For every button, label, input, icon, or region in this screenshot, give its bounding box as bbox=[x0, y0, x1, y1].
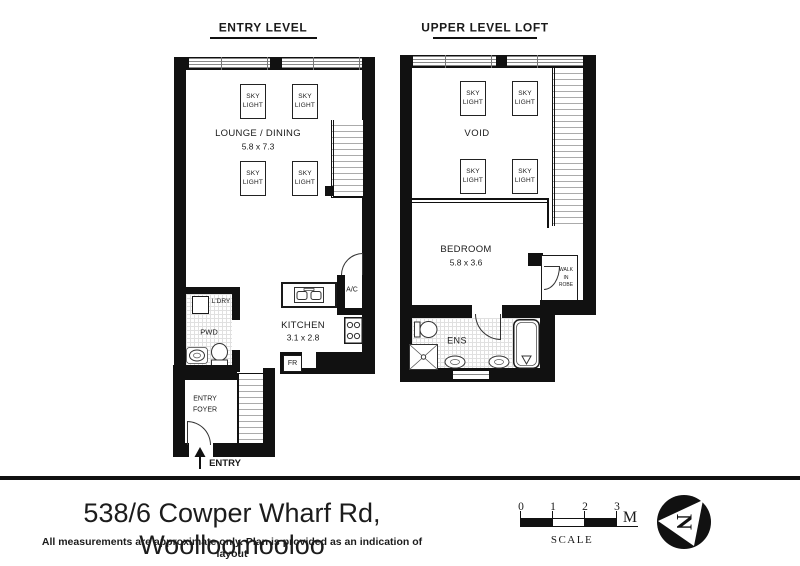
ac-closet-bottom-wall bbox=[337, 308, 375, 315]
entry-left-wall bbox=[174, 57, 186, 380]
skylight: SKY LIGHT bbox=[292, 84, 318, 119]
skylight: SKY LIGHT bbox=[240, 161, 266, 196]
scale-tick bbox=[520, 511, 521, 518]
bedroom-dimensions: 5.8 x 3.6 bbox=[450, 258, 483, 269]
ensuite-top-wall-left bbox=[412, 305, 472, 318]
upper-level-title: UPPER LEVEL LOFT bbox=[421, 21, 548, 36]
powder-label: PWD bbox=[200, 327, 218, 336]
cooktop-icon bbox=[344, 317, 363, 344]
scale-tick bbox=[616, 511, 617, 518]
ensuite-window bbox=[453, 370, 489, 380]
void-balustrade bbox=[412, 198, 549, 203]
loft-right-wall bbox=[583, 55, 596, 315]
skylight: SKY LIGHT bbox=[460, 81, 486, 116]
ensuite-toilet-icon bbox=[414, 320, 438, 339]
scale-tick bbox=[552, 511, 553, 518]
ensuite-top-wall-right bbox=[502, 305, 540, 318]
disclaimer-text: All measurements are approximate only. P… bbox=[26, 536, 438, 560]
kitchen-wall-recess bbox=[302, 352, 316, 368]
skylight: SKY LIGHT bbox=[460, 159, 486, 194]
skylight: SKY LIGHT bbox=[512, 81, 538, 116]
skylight-label: SKY LIGHT bbox=[463, 168, 483, 185]
loft-stairs bbox=[552, 68, 583, 226]
ac-label: A/C bbox=[346, 287, 358, 296]
balustrade-return bbox=[547, 198, 549, 228]
floorplan-page: { "plans": [ { "title": "ENTRY LEVEL", "… bbox=[0, 0, 800, 566]
scale-unit-label: M bbox=[623, 508, 637, 528]
scale-segment-black bbox=[521, 519, 553, 526]
stair-newel-post bbox=[325, 186, 333, 196]
footer-divider bbox=[0, 476, 800, 480]
basin-icon bbox=[186, 347, 208, 364]
ac-closet-door-arc bbox=[341, 253, 363, 275]
fridge-box: FR bbox=[283, 355, 302, 372]
kitchen-dimensions: 3.1 x 2.8 bbox=[287, 333, 320, 344]
kitchen-label: KITCHEN bbox=[281, 320, 325, 332]
scale-tick bbox=[584, 511, 585, 518]
toilet-icon bbox=[209, 343, 230, 367]
skylight-label: SKY LIGHT bbox=[463, 90, 483, 107]
entry-right-wall bbox=[362, 57, 375, 374]
bedroom-label: BEDROOM bbox=[440, 244, 491, 256]
foyer-bottom-wall-left bbox=[173, 443, 189, 457]
north-arrow-icon: N bbox=[656, 494, 712, 550]
upper-level-title-underline bbox=[433, 37, 537, 39]
front-door-arc bbox=[187, 421, 211, 445]
skylight-label: SKY LIGHT bbox=[515, 90, 535, 107]
skylight: SKY LIGHT bbox=[240, 84, 266, 119]
entry-arrow-icon bbox=[194, 447, 206, 469]
vanity-basin-icon bbox=[443, 355, 467, 369]
fridge-label: FR bbox=[288, 360, 297, 367]
powder-top-wall bbox=[180, 287, 240, 294]
loft-top-window-pier bbox=[496, 55, 507, 68]
loft-left-wall bbox=[400, 55, 412, 382]
vanity-basin-icon bbox=[487, 355, 511, 369]
ac-closet-left-wall bbox=[337, 275, 345, 308]
skylight-label: SKY LIGHT bbox=[295, 170, 315, 187]
laundry-label: L'DRY bbox=[212, 298, 230, 306]
skylight: SKY LIGHT bbox=[292, 161, 318, 196]
walk-in-robe-label: WALK IN ROBE bbox=[559, 267, 573, 290]
foyer-top-wall bbox=[173, 365, 237, 380]
entry-label: ENTRY bbox=[209, 458, 241, 470]
scale-tick-label: 0 bbox=[518, 500, 524, 514]
scale-tick-label: 1 bbox=[550, 500, 556, 514]
lounge-dining-dimensions: 5.8 x 7.3 bbox=[242, 142, 275, 153]
stairs-to-loft bbox=[331, 120, 363, 198]
entry-level-title-underline bbox=[210, 37, 317, 39]
foyer-stair-right-wall bbox=[263, 368, 275, 457]
scale-tick-label: 2 bbox=[582, 500, 588, 514]
lounge-dining-label: LOUNGE / DINING bbox=[215, 128, 301, 140]
shower-icon bbox=[409, 344, 438, 370]
powder-right-wall-upper bbox=[232, 287, 240, 320]
skylight-label: SKY LIGHT bbox=[243, 93, 263, 110]
entry-top-window-pier bbox=[270, 57, 282, 70]
skylight-label: SKY LIGHT bbox=[295, 93, 315, 110]
washing-machine-icon bbox=[192, 296, 209, 314]
scale-caption: SCALE bbox=[551, 534, 593, 548]
kitchen-sink-icon bbox=[294, 287, 324, 303]
scale-segment-black bbox=[584, 519, 616, 526]
entry-level-title: ENTRY LEVEL bbox=[219, 21, 308, 36]
entry-foyer-label: ENTRY FOYER bbox=[193, 395, 217, 416]
bathtub-icon bbox=[513, 319, 540, 369]
void-label: VOID bbox=[464, 128, 489, 140]
scale-bar-strip bbox=[520, 518, 617, 527]
north-letter: N bbox=[672, 514, 697, 530]
foyer-stairs bbox=[237, 373, 263, 443]
skylight-label: SKY LIGHT bbox=[515, 168, 535, 185]
scale-tick-label: 3 bbox=[614, 500, 620, 514]
skylight-label: SKY LIGHT bbox=[243, 170, 263, 187]
skylight: SKY LIGHT bbox=[512, 159, 538, 194]
ensuite-label: ENS bbox=[447, 335, 467, 346]
